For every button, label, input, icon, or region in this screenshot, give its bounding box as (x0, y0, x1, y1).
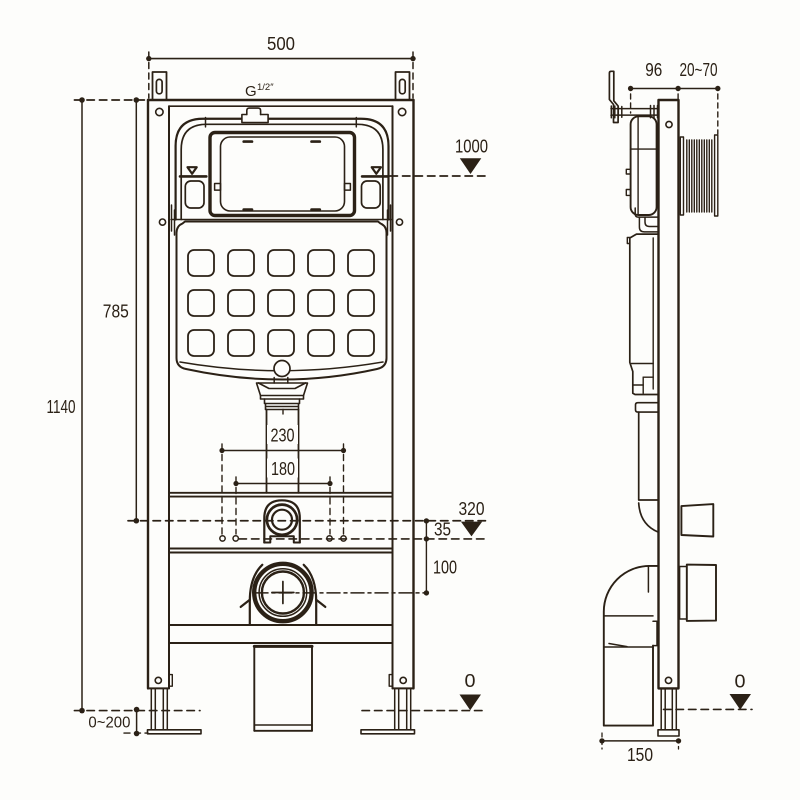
svg-text:0~200: 0~200 (88, 715, 130, 732)
svg-text:0: 0 (465, 670, 476, 691)
svg-text:180: 180 (271, 458, 295, 479)
svg-text:1140: 1140 (47, 396, 76, 417)
svg-text:96: 96 (645, 59, 662, 80)
svg-text:G: G (245, 83, 257, 100)
svg-text:320: 320 (459, 498, 485, 519)
svg-text:100: 100 (433, 557, 457, 578)
svg-text:1/2″: 1/2″ (257, 82, 274, 93)
svg-text:785: 785 (103, 301, 129, 322)
svg-text:1000: 1000 (455, 136, 488, 157)
svg-text:20~70: 20~70 (680, 59, 718, 80)
svg-text:150: 150 (627, 744, 653, 765)
svg-text:0: 0 (735, 671, 746, 692)
svg-text:35: 35 (434, 519, 451, 540)
svg-text:500: 500 (267, 33, 295, 54)
svg-text:230: 230 (271, 425, 295, 446)
